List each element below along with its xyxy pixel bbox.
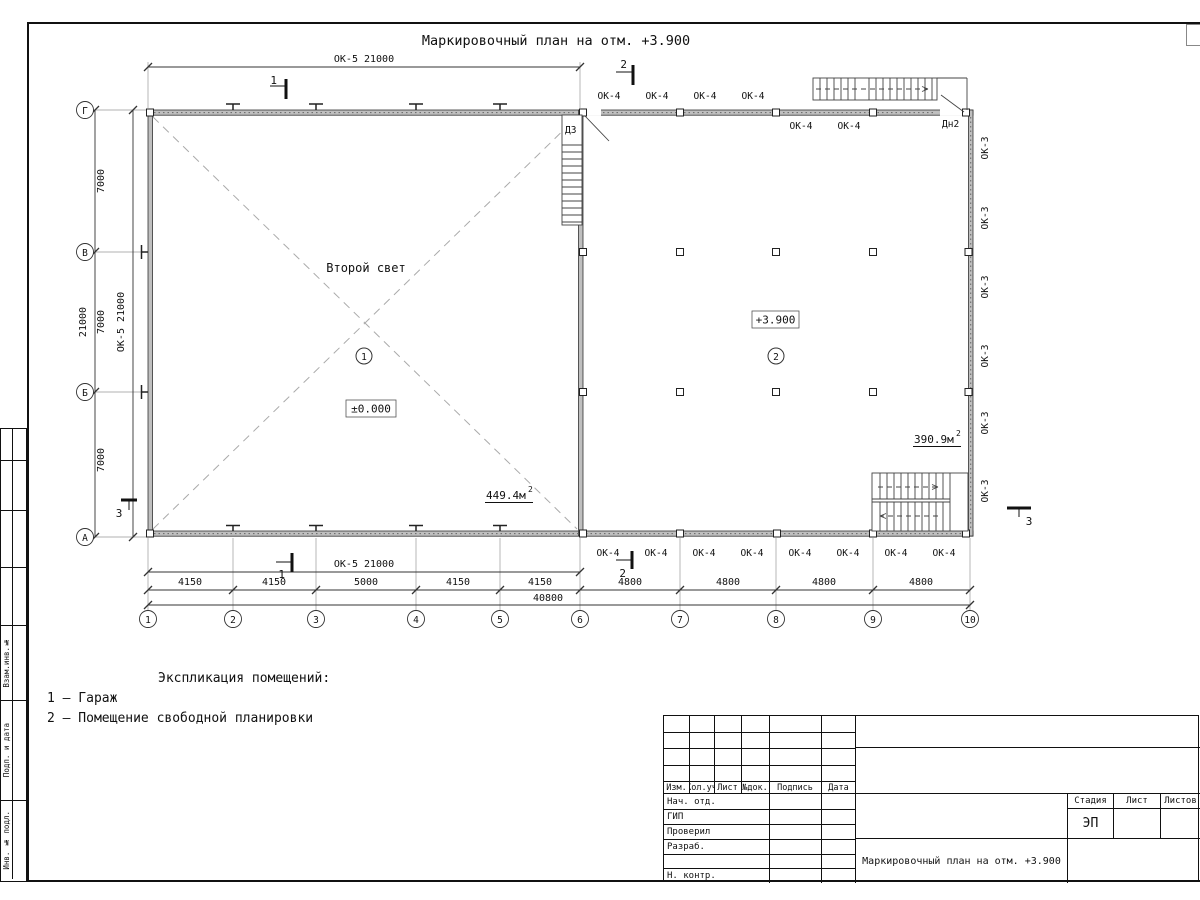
list-header: Лист	[1114, 794, 1161, 809]
svg-text:7: 7	[677, 615, 683, 626]
col-data: Дата	[821, 781, 856, 794]
ok4-label: ОК-4	[646, 91, 669, 102]
title-block: Изм. Кол.уч Лист №док. Подпись Дата Нач.…	[663, 715, 1199, 882]
margin-column: Взам.инв.№ Подп. и дата Инв. № подл.	[0, 428, 27, 882]
legend-item-2: 2 – Помещение свободной планировки	[47, 711, 313, 726]
dim-21000: 21000	[78, 307, 89, 337]
column-squares	[147, 109, 973, 537]
section-1-top: 1	[270, 74, 277, 87]
ok3-label: ОК-3	[980, 207, 991, 230]
axis-bubbles-bottom	[140, 611, 979, 628]
stage-value: ЭП	[1083, 816, 1099, 831]
row-nkontr: Н. контр.	[664, 868, 769, 883]
ok4-label: ОК-4	[885, 548, 908, 559]
listov-header: Листов	[1161, 794, 1200, 809]
svg-text:6: 6	[577, 615, 583, 626]
margin-label-vzam: Взам.инв.№	[2, 638, 11, 688]
ok4-label: ОК-4	[694, 91, 717, 102]
ok3-label: ОК-3	[980, 345, 991, 368]
dim-4150-1: 4150	[178, 577, 202, 588]
dim-40800: 40800	[533, 593, 563, 604]
area2-label: 390.9м	[914, 433, 954, 446]
stage-value-cell: ЭП	[1068, 809, 1114, 839]
ok4-label: ОК-4	[598, 91, 621, 102]
stage-header: Стадия	[1068, 794, 1114, 809]
ok4-label: ОК-4	[837, 548, 860, 559]
section-2-bottom: 2	[619, 567, 626, 580]
area2-sup: 2	[956, 429, 961, 438]
ok3-label: ОК-3	[980, 276, 991, 299]
axis-extension-lines	[94, 62, 971, 610]
legend-item-1: 1 – Гараж	[47, 691, 117, 706]
dim-7000-1: 7000	[96, 169, 107, 193]
frame-corner-box	[1186, 24, 1200, 46]
ok4-label: ОК-4	[933, 548, 956, 559]
dim-5000: 5000	[354, 577, 378, 588]
margin-box-podp: Подп. и дата	[1, 701, 26, 801]
ibeam-columns	[142, 104, 508, 531]
dim-7000-3: 7000	[96, 448, 107, 472]
ok4-label: ОК-4	[838, 121, 861, 132]
col-podpis: Подпись	[769, 781, 821, 794]
margin-label-podp: Подп. и дата	[2, 723, 11, 777]
exterior-stair	[813, 78, 967, 112]
org-cell	[1068, 839, 1200, 883]
col-ndok: №док.	[741, 781, 769, 794]
sheet-title-text: Маркировочный план на отм. +3.900	[862, 856, 1061, 867]
area1-sup: 2	[528, 485, 533, 494]
row-gip: ГИП	[664, 809, 769, 824]
ok4-label: ОК-4	[790, 121, 813, 132]
row-nach-otd: Нач. отд.	[664, 794, 769, 809]
ok4-label: ОК-4	[742, 91, 765, 102]
dimension-lines	[95, 67, 970, 605]
void-cross-diagonals	[153, 117, 577, 529]
axis-labels-bottom: 1 2 3 4 5 6 7 8 9 10	[145, 615, 976, 626]
sheet-title-cell: Маркировочный план на отм. +3.900	[856, 839, 1068, 883]
second-light-label: Второй свет	[326, 261, 405, 275]
dim-7000-2: 7000	[96, 310, 107, 334]
frame-top	[27, 22, 1200, 24]
ok4-label: ОК-4	[741, 548, 764, 559]
ok3-label: ОК-3	[980, 480, 991, 503]
dim-4150-4: 4150	[528, 577, 552, 588]
ok4-label: ОК-4	[645, 548, 668, 559]
svg-text:В: В	[82, 248, 88, 259]
dim-4150-3: 4150	[446, 577, 470, 588]
margin-box-empty-3	[1, 511, 26, 568]
ok4-label: ОК-4	[693, 548, 716, 559]
svg-text:1: 1	[145, 615, 151, 626]
col-koluch: Кол.уч	[689, 781, 714, 794]
drawing-sheet: Маркировочный план на отм. +3.900	[0, 0, 1200, 900]
frame-left	[27, 22, 29, 882]
level-zero-label: ±0.000	[351, 403, 391, 416]
listov-value-cell	[1161, 809, 1200, 839]
dim-4800-2: 4800	[716, 577, 740, 588]
svg-text:Г: Г	[82, 106, 88, 117]
object-cell	[856, 794, 1068, 839]
ok4-label: ОК-4	[597, 548, 620, 559]
svg-text:Б: Б	[82, 388, 88, 399]
designation-cell	[856, 716, 1200, 748]
svg-text:10: 10	[964, 615, 976, 626]
margin-box-vzam: Взам.инв.№	[1, 626, 26, 701]
dim-ok5-bottom: ОК-5 21000	[334, 559, 394, 570]
margin-label-inv: Инв. № подл.	[2, 811, 11, 870]
plan-heading: Маркировочный план на отм. +3.900	[422, 33, 690, 49]
door-dn2-label: Дн2	[942, 119, 959, 130]
svg-text:4: 4	[413, 615, 419, 626]
area1-label: 449.4м	[486, 489, 526, 502]
svg-text:А: А	[82, 533, 88, 544]
level-high-label: +3.900	[756, 314, 796, 327]
margin-box-empty-2	[1, 461, 26, 511]
room1-number: 1	[361, 352, 367, 363]
dim-4800-4: 4800	[909, 577, 933, 588]
list-value-cell	[1114, 809, 1161, 839]
ok3-label: ОК-3	[980, 137, 991, 160]
svg-text:3: 3	[313, 615, 319, 626]
dim-ok5-top: ОК-5 21000	[334, 54, 394, 65]
dim-ok5-left: ОК-5 21000	[116, 292, 127, 352]
dim-4800-3: 4800	[812, 577, 836, 588]
section-2-top: 2	[620, 58, 627, 71]
svg-text:8: 8	[773, 615, 779, 626]
name-cell	[856, 748, 1200, 794]
section-3-right: 3	[1026, 515, 1033, 528]
walls	[148, 110, 973, 536]
room2-number: 2	[773, 352, 779, 363]
legend-title: Экспликация помещений:	[158, 671, 330, 686]
col-izm: Изм.	[664, 781, 689, 794]
change-table: Изм. Кол.уч Лист №док. Подпись Дата	[664, 716, 856, 794]
row-razrab: Разраб.	[664, 839, 769, 854]
svg-text:2: 2	[230, 615, 236, 626]
row-proveril: Проверил	[664, 824, 769, 839]
section-3-left: 3	[116, 507, 123, 520]
col-list: Лист	[714, 781, 741, 794]
ok4-label: ОК-4	[789, 548, 812, 559]
signature-rows: Нач. отд. ГИП Проверил Разраб. Н. контр.	[664, 794, 856, 883]
row-empty	[664, 854, 769, 868]
stair-bottom-right	[872, 473, 968, 531]
margin-box-empty-1	[1, 429, 26, 461]
ok3-label: ОК-3	[980, 412, 991, 435]
section-1-bottom: 1	[278, 568, 285, 581]
dimension-ticks	[91, 63, 974, 609]
svg-text:5: 5	[497, 615, 503, 626]
margin-box-inv: Инв. № подл.	[1, 801, 26, 879]
svg-text:9: 9	[870, 615, 876, 626]
stair-d3-label: Д3	[565, 125, 576, 136]
margin-box-empty-4	[1, 568, 26, 626]
